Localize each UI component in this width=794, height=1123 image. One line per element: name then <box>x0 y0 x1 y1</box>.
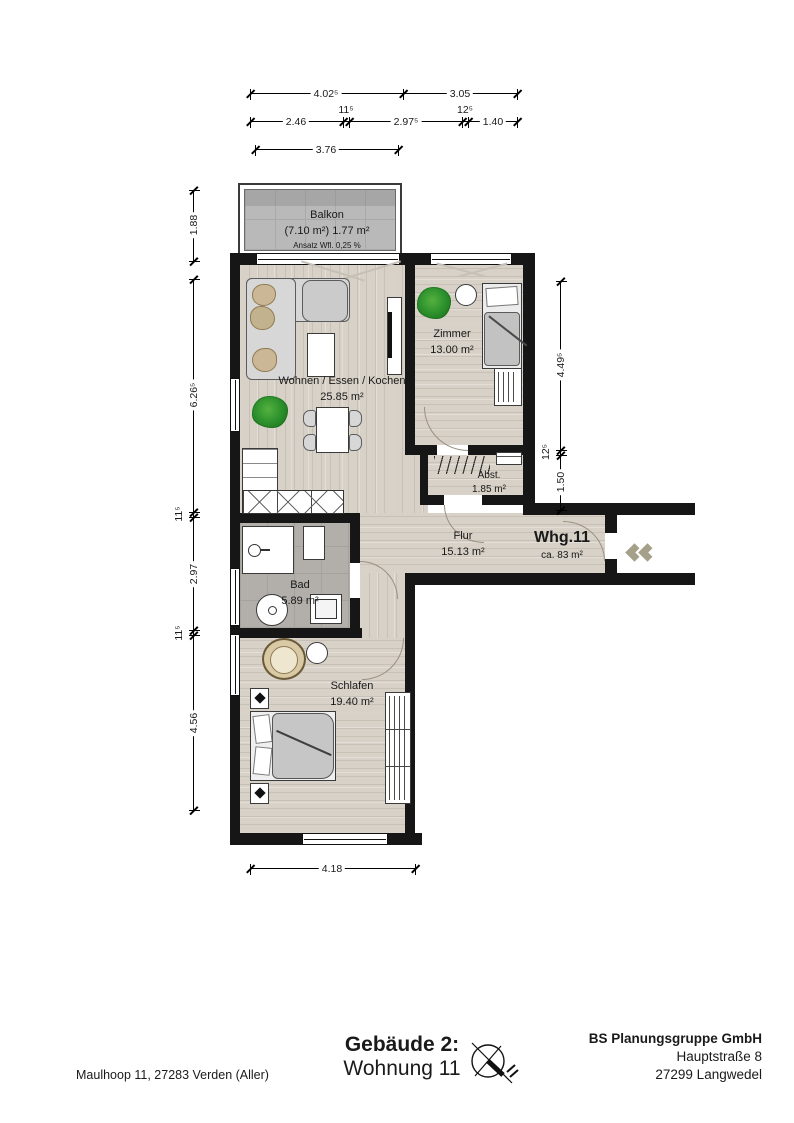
window-balcony-door <box>256 253 400 265</box>
coffee-table <box>307 333 335 377</box>
wall-entry-stub-top <box>605 515 617 533</box>
window-bath-left <box>230 568 240 626</box>
nightstand <box>250 688 269 709</box>
dimension-value: 3.76 <box>313 144 339 156</box>
window-living-left <box>230 378 240 432</box>
pillow <box>252 348 277 372</box>
wall-bath-top <box>240 513 360 523</box>
room-label-wohnen: Wohnen / Essen / Kochen 25.85 m² <box>279 374 406 406</box>
chair <box>303 410 316 427</box>
unit-number: Whg.11 <box>534 526 590 549</box>
dimension-value: 4.49⁵ <box>555 350 567 381</box>
dimension-value: 4.18 <box>319 863 345 875</box>
unit-area: ca. 83 m² <box>534 549 590 564</box>
room-name: Flur <box>441 529 484 545</box>
kitchen-units <box>242 490 344 514</box>
armchair-seat <box>270 646 298 674</box>
dimension-line: 6.26⁵ 11⁵ 2.97 11⁵ 4.56 <box>193 279 194 810</box>
room-label-bad: Bad 5.89 m² <box>281 578 318 610</box>
dimension-value: 1.40 <box>480 116 506 128</box>
room-name: Balkon <box>285 208 370 224</box>
dimension-value: 11⁵ <box>173 622 185 643</box>
room-name: Schlafen <box>330 679 373 695</box>
wardrobe <box>494 368 522 406</box>
wall-zimmer-bottom-a <box>415 445 437 455</box>
bed-duvet <box>272 713 334 779</box>
room-label-abst: Abst. 1.85 m² <box>472 469 506 497</box>
round-table <box>455 284 477 306</box>
room-name: Abst. <box>472 469 506 483</box>
side-table-round <box>306 642 328 664</box>
dimension-line: 3.76 <box>255 149 398 150</box>
window-bedroom-left <box>230 634 240 696</box>
dimension-value: 12⁵ <box>540 441 552 463</box>
shelf <box>496 452 522 465</box>
site-address: Maulhoop 11, 27283 Verden (Aller) <box>76 1068 269 1082</box>
wall-corridor-bottom <box>405 573 695 585</box>
plant-icon <box>417 287 451 319</box>
window-bedroom-bottom <box>302 833 388 845</box>
unit-label: Whg.11 ca. 83 m² <box>534 526 590 564</box>
floor-plan-sheet: Balkon (7.10 m²) 1.77 m² Ansatz Wfl. 0,2… <box>0 0 794 1123</box>
company-street: Hauptstraße 8 <box>589 1048 762 1066</box>
dimension-value: 1.88 <box>188 212 200 238</box>
dimension-value: 11⁵ <box>173 503 185 524</box>
north-compass-icon <box>462 1034 524 1094</box>
wall-left <box>230 253 240 845</box>
dining-table <box>316 407 349 453</box>
company-city: 27299 Langwedel <box>589 1066 762 1084</box>
dimension-value: 4.56 <box>188 710 200 736</box>
wall-zimmer-right <box>523 253 535 515</box>
room-label-flur: Flur 15.13 m² <box>441 529 484 561</box>
chair <box>349 410 362 427</box>
wall-living-zimmer <box>405 265 415 455</box>
company-block: BS Planungsgruppe GmbH Hauptstraße 8 272… <box>589 1030 762 1085</box>
dimension-line: 1.88 <box>193 190 194 261</box>
room-note: Ansatz Wfl. 0,25 % <box>285 240 370 252</box>
entrance-chevron-icon <box>638 543 656 561</box>
chair <box>303 434 316 451</box>
sheet-title: Gebäude 2: Wohnung 11 <box>343 1032 460 1081</box>
dimension-value: 1.50 <box>555 469 567 495</box>
room-name: Bad <box>281 578 318 594</box>
dimension-line: 4.02⁵ 3.05 <box>250 93 517 94</box>
dimension-line: 2.46 11⁵ 2.97⁵ 12⁵ 1.40 <box>250 121 517 122</box>
company-name: BS Planungsgruppe GmbH <box>589 1030 762 1048</box>
dimension-value: 3.05 <box>447 88 473 100</box>
room-area: (7.10 m²) 1.77 m² <box>285 224 370 240</box>
room-name: Wohnen / Essen / Kochen <box>279 374 406 390</box>
pillow <box>250 306 275 330</box>
wall-entry-stub-bottom <box>605 559 617 573</box>
dimension-line: 4.49⁵ 12⁵ 1.50 <box>560 281 561 510</box>
room-label-zimmer: Zimmer 13.00 m² <box>430 327 473 359</box>
dimension-value: 12⁵ <box>455 104 475 116</box>
tv <box>388 312 392 358</box>
kitchen-counter <box>242 448 278 492</box>
wardrobe <box>385 692 411 804</box>
wall-bath-bottom <box>240 628 362 638</box>
washbasin-drain <box>268 606 277 615</box>
bed-pillow <box>485 286 518 307</box>
wall-bath-right-a <box>350 523 360 563</box>
dimension-value: 11⁵ <box>336 104 355 116</box>
room-label-balkon: Balkon (7.10 m²) 1.77 m² Ansatz Wfl. 0,2… <box>285 208 370 251</box>
room-area: 5.89 m² <box>281 594 318 610</box>
shower-arm <box>260 549 270 551</box>
dimension-value: 2.97⁵ <box>391 116 422 128</box>
dimension-value: 4.02⁵ <box>311 88 342 100</box>
dimension-value: 2.46 <box>283 116 309 128</box>
bed-pillow <box>252 714 272 744</box>
dimension-value: 6.26⁵ <box>188 380 200 411</box>
wall-corridor-top <box>523 503 695 515</box>
building-title: Gebäude 2: <box>343 1032 460 1057</box>
dimension-line: 4.18 <box>250 868 415 869</box>
dimension-value: 2.97 <box>188 561 200 587</box>
bed-pillow <box>253 746 273 776</box>
nightstand <box>250 783 269 804</box>
bath-cabinet <box>303 526 325 560</box>
room-label-schlafen: Schlafen 19.40 m² <box>330 679 373 711</box>
bed-duvet <box>484 312 520 366</box>
unit-title: Wohnung 11 <box>343 1057 460 1081</box>
room-area: 15.13 m² <box>441 545 484 561</box>
armchair <box>302 280 348 322</box>
room-area: 25.85 m² <box>279 390 406 406</box>
room-area: 19.40 m² <box>330 695 373 711</box>
room-area: 1.85 m² <box>472 483 506 497</box>
chair <box>349 434 362 451</box>
wall-storage-bottom-a <box>420 495 444 505</box>
room-name: Zimmer <box>430 327 473 343</box>
room-area: 13.00 m² <box>430 343 473 359</box>
